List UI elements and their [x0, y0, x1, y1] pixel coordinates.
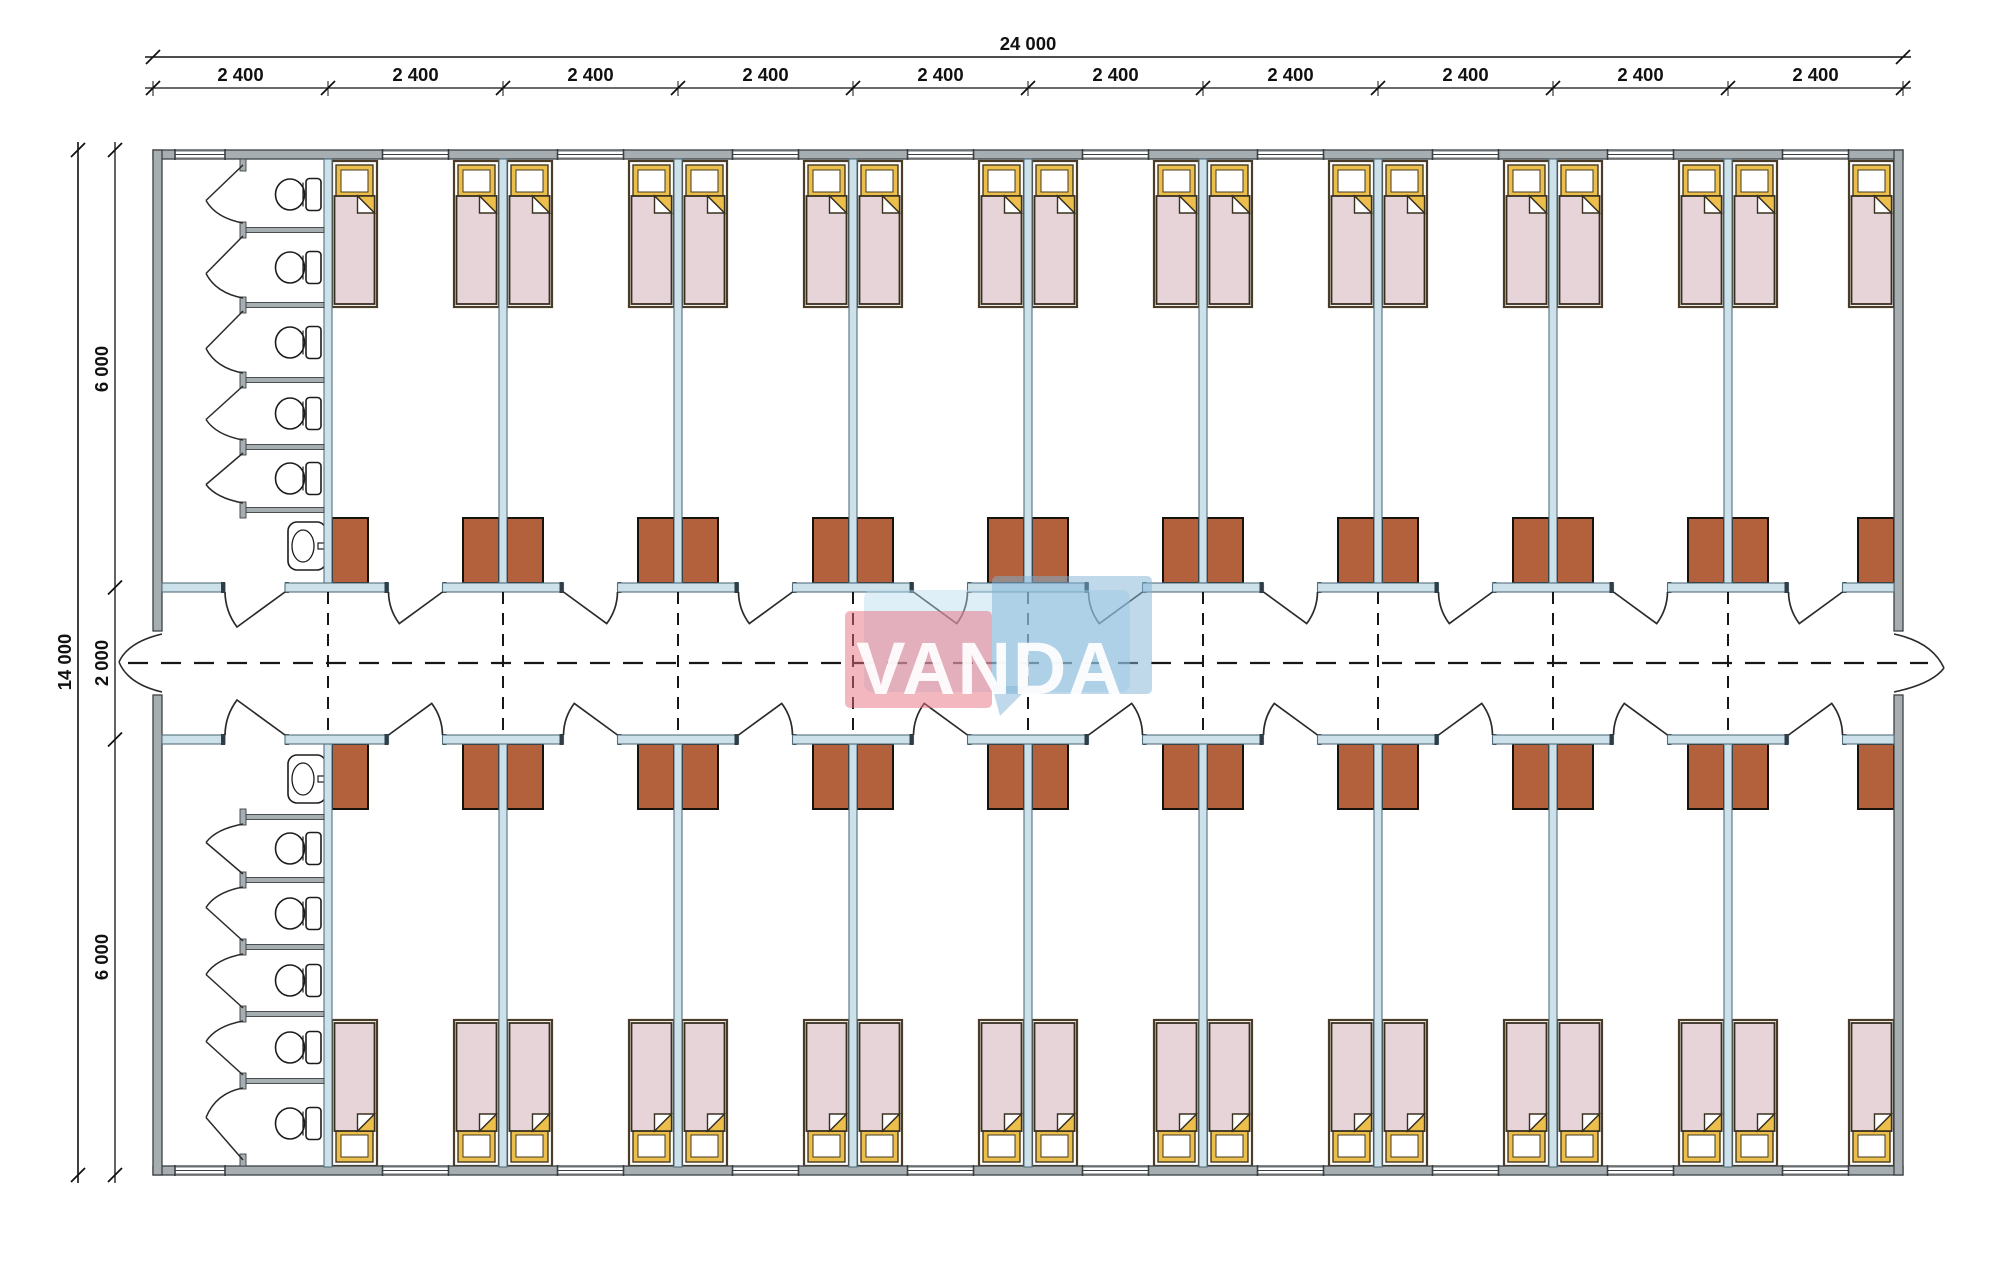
bed-pillow-inner	[1391, 1135, 1418, 1157]
bed	[629, 161, 674, 307]
wardrobe-cabinet	[988, 518, 1024, 583]
corridor-wall	[1668, 735, 1789, 744]
door-jamb-cap	[735, 734, 739, 745]
toilet-tank	[306, 327, 321, 359]
toilet-bowl	[276, 252, 305, 283]
toilet	[276, 398, 322, 430]
stall-door-leaf	[206, 1042, 243, 1076]
bed-pillow-inner	[866, 170, 893, 192]
corridor-wall	[1493, 735, 1614, 744]
sink	[288, 755, 326, 803]
bed	[454, 1020, 499, 1166]
wardrobe-cabinet	[638, 518, 674, 583]
partition-wall	[849, 159, 857, 583]
sink-basin	[292, 530, 314, 562]
stall-front-wall	[240, 1006, 246, 1022]
stall-front-wall	[240, 502, 246, 518]
window	[558, 149, 624, 160]
bed	[1679, 1020, 1724, 1166]
bed-pillow-inner	[1338, 170, 1365, 192]
stall-door-swing	[206, 1088, 243, 1118]
stall-door-swing	[206, 485, 243, 504]
stall-wall	[246, 1012, 324, 1017]
bed-pillow-inner	[1513, 170, 1540, 192]
stall-door-leaf	[206, 843, 243, 875]
wardrobe-cabinet	[1382, 744, 1418, 809]
stall-door-swing	[206, 954, 243, 975]
bed-pillow-inner	[691, 170, 718, 192]
wardrobe-cabinet	[332, 518, 368, 583]
wardrobe-cabinet	[1557, 518, 1593, 583]
sink-basin	[292, 763, 314, 795]
door-swing	[1264, 592, 1318, 624]
toilet-tank	[306, 398, 321, 430]
wardrobe-cabinet	[682, 518, 718, 583]
door-jamb-cap	[560, 582, 564, 593]
toilet-tank	[306, 1032, 321, 1064]
toilet-bowl	[276, 965, 305, 996]
stall-wall	[246, 303, 324, 308]
toilet-tank	[306, 463, 321, 495]
bed	[682, 1020, 727, 1166]
dimension-label: 2 400	[917, 64, 963, 85]
bed	[857, 161, 902, 307]
bed-pillow-inner	[866, 1135, 893, 1157]
wardrobe-cabinet	[1858, 518, 1894, 583]
bed	[1154, 1020, 1199, 1166]
stall-front-wall	[240, 1073, 246, 1089]
bed	[1504, 161, 1549, 307]
window	[1083, 1165, 1149, 1176]
window	[1258, 1165, 1324, 1176]
exterior-wall	[153, 150, 162, 631]
partition-wall	[1024, 159, 1032, 583]
corridor-wall	[285, 583, 389, 592]
door-swing	[389, 592, 443, 624]
watermark: VANDA	[845, 576, 1152, 716]
partition-wall	[849, 744, 857, 1167]
wardrobe-cabinet	[1032, 518, 1068, 583]
door-jamb-cap	[385, 582, 389, 593]
bed	[1732, 161, 1777, 307]
toilet-tank	[306, 1108, 321, 1140]
stall-door-swing	[206, 420, 243, 441]
stall-front-wall	[240, 809, 246, 825]
toilet-bowl	[276, 179, 305, 210]
window	[1083, 149, 1149, 160]
corridor-wall	[162, 583, 225, 592]
bed-pillow-inner	[988, 1135, 1015, 1157]
window	[1258, 149, 1324, 160]
toilet	[276, 179, 322, 211]
wardrobe-cabinet	[1032, 744, 1068, 809]
wardrobe-cabinet	[638, 744, 674, 809]
bed-pillow-inner	[1566, 1135, 1593, 1157]
door-swing	[1439, 592, 1493, 624]
door-jamb-cap	[1610, 734, 1614, 745]
window	[1433, 149, 1499, 160]
door-swing	[1264, 703, 1318, 735]
wardrobe-cabinet	[1513, 744, 1549, 809]
door-jamb-cap	[560, 734, 564, 745]
window	[383, 149, 449, 160]
door-jamb-cap	[385, 734, 389, 745]
bed	[682, 161, 727, 307]
partition-wall	[1724, 159, 1732, 583]
wardrobe-cabinet	[1732, 744, 1768, 809]
dimension-label: 6 000	[91, 346, 112, 392]
bed-pillow-inner	[516, 1135, 543, 1157]
window	[1783, 149, 1849, 160]
stall-door-swing	[206, 1021, 243, 1042]
bed-pillow-inner	[1688, 1135, 1715, 1157]
wardrobe-cabinet	[1207, 744, 1243, 809]
window	[558, 1165, 624, 1176]
dimension-label: 2 400	[1092, 64, 1138, 85]
partition-wall	[1549, 744, 1557, 1167]
toilet	[276, 965, 322, 997]
stall-front-wall	[240, 222, 246, 238]
stall-wall	[246, 945, 324, 950]
bed	[1679, 161, 1724, 307]
exterior-wall	[153, 695, 162, 1175]
bed-pillow-inner	[638, 1135, 665, 1157]
door-swing	[1789, 703, 1843, 735]
bed-pillow-inner	[1566, 170, 1593, 192]
partition-wall	[674, 159, 682, 583]
corridor-wall	[1843, 735, 1895, 744]
toilet-tank	[306, 252, 321, 284]
door-jamb-cap	[1260, 734, 1264, 745]
window	[383, 1165, 449, 1176]
stall-front-wall	[240, 939, 246, 955]
corridor-wall	[1843, 583, 1895, 592]
door-swing	[739, 703, 793, 735]
bed	[1207, 1020, 1252, 1166]
window	[1608, 149, 1674, 160]
bed	[1329, 161, 1374, 307]
door-swing	[1789, 592, 1843, 624]
stall-door-leaf	[206, 386, 243, 420]
stall-wall	[246, 378, 324, 383]
wardrobe-cabinet	[507, 744, 543, 809]
sink	[288, 522, 326, 570]
stall-front-wall	[240, 872, 246, 888]
wardrobe-cabinet	[1688, 518, 1724, 583]
bed	[332, 1020, 377, 1166]
stall-door-leaf	[206, 908, 243, 942]
door-jamb-cap	[735, 582, 739, 593]
door-swing	[739, 592, 793, 624]
toilet-bowl	[276, 833, 305, 864]
bed	[1504, 1020, 1549, 1166]
toilet	[276, 898, 322, 930]
dimension-label: 2 400	[217, 64, 263, 85]
dimension-label: 2 400	[1442, 64, 1488, 85]
bed	[332, 161, 377, 307]
bed	[1557, 161, 1602, 307]
stall-door-leaf	[206, 453, 243, 485]
bed-pillow-inner	[341, 170, 368, 192]
bed	[804, 1020, 849, 1166]
stall-door-swing	[206, 274, 243, 299]
partition-wall	[1199, 744, 1207, 1167]
window	[175, 1165, 225, 1176]
bed-pillow-inner	[1216, 1135, 1243, 1157]
dormitory-floor-plan: 24 0002 4002 4002 4002 4002 4002 4002 40…	[0, 0, 2000, 1285]
window	[733, 149, 799, 160]
wardrobe-cabinet	[1207, 518, 1243, 583]
wardrobe-cabinet	[682, 744, 718, 809]
toilet-bowl	[276, 463, 305, 494]
stall-wall	[246, 445, 324, 450]
bed	[454, 161, 499, 307]
toilet	[276, 252, 322, 284]
bed-pillow-inner	[813, 1135, 840, 1157]
toilet	[276, 1108, 322, 1140]
stall-door-swing	[206, 201, 243, 224]
bed-pillow-inner	[1858, 1135, 1885, 1157]
bed	[507, 1020, 552, 1166]
watermark-text: VANDA	[856, 627, 1124, 710]
partition-wall	[499, 159, 507, 583]
wardrobe-cabinet	[857, 744, 893, 809]
bed-pillow-inner	[463, 1135, 490, 1157]
door-jamb-cap	[910, 734, 914, 745]
bed-pillow-inner	[1338, 1135, 1365, 1157]
dimension-label: 24 000	[1000, 33, 1057, 54]
bed-pillow-inner	[1041, 170, 1068, 192]
stall-door-leaf	[206, 1118, 243, 1161]
door-jamb-cap	[1610, 582, 1614, 593]
corridor-wall	[1493, 583, 1614, 592]
wardrobe-cabinet	[1557, 744, 1593, 809]
wardrobe-cabinet	[988, 744, 1024, 809]
door-jamb-cap	[1085, 734, 1089, 745]
bed-pillow-inner	[1163, 170, 1190, 192]
stall-front-wall	[240, 439, 246, 455]
bed	[979, 1020, 1024, 1166]
wardrobe-cabinet	[1163, 518, 1199, 583]
bed-pillow-inner	[1513, 1135, 1540, 1157]
bed	[857, 1020, 902, 1166]
corridor-wall	[162, 735, 225, 744]
bed-pillow-inner	[988, 170, 1015, 192]
wardrobe-cabinet	[507, 518, 543, 583]
dimension-label: 2 400	[567, 64, 613, 85]
stall-door-leaf	[206, 165, 243, 201]
dimension-label: 2 000	[91, 640, 112, 686]
partition-wall	[324, 159, 332, 583]
bed	[979, 161, 1024, 307]
bed-pillow-inner	[1688, 170, 1715, 192]
bed	[1032, 161, 1077, 307]
corridor-wall	[443, 735, 564, 744]
wardrobe-cabinet	[1382, 518, 1418, 583]
toilet-tank	[306, 898, 321, 930]
wardrobe-cabinet	[463, 744, 499, 809]
window	[908, 1165, 974, 1176]
corridor-wall	[968, 735, 1089, 744]
door-swing	[1614, 703, 1668, 735]
bed	[1329, 1020, 1374, 1166]
corridor-wall	[793, 735, 914, 744]
wardrobe-cabinet	[813, 744, 849, 809]
stall-wall	[246, 815, 324, 820]
dimension-label: 14 000	[54, 634, 75, 691]
toilet	[276, 327, 322, 359]
wardrobe-cabinet	[857, 518, 893, 583]
stall-wall	[246, 228, 324, 233]
bathroom-door-swing	[225, 700, 285, 735]
bed	[1849, 161, 1894, 307]
wardrobe-cabinet	[813, 518, 849, 583]
window	[1783, 1165, 1849, 1176]
corridor-wall	[1318, 583, 1439, 592]
bed-pillow-inner	[1216, 170, 1243, 192]
bed-pillow-inner	[691, 1135, 718, 1157]
bed	[1382, 161, 1427, 307]
door-jamb-cap	[221, 582, 225, 593]
stall-wall	[246, 508, 324, 513]
exterior-wall	[1894, 150, 1903, 631]
toilet	[276, 463, 322, 495]
bed	[1032, 1020, 1077, 1166]
door-swing	[389, 703, 443, 735]
window	[175, 149, 225, 160]
wardrobe-cabinet	[1732, 518, 1768, 583]
partition-wall	[1374, 744, 1382, 1167]
door-jamb-cap	[221, 734, 225, 745]
corridor-wall	[1143, 735, 1264, 744]
partition-wall	[1374, 159, 1382, 583]
wardrobe-cabinet	[1163, 744, 1199, 809]
bed	[1557, 1020, 1602, 1166]
corridor-wall	[285, 735, 389, 744]
bed	[1207, 161, 1252, 307]
bed	[1849, 1020, 1894, 1166]
toilet-tank	[306, 965, 321, 997]
wardrobe-cabinet	[1338, 744, 1374, 809]
stall-wall	[246, 1079, 324, 1084]
door-jamb-cap	[1435, 734, 1439, 745]
bed-pillow-inner	[638, 170, 665, 192]
wardrobe-cabinet	[1688, 744, 1724, 809]
corridor-wall	[618, 735, 739, 744]
stall-wall	[246, 878, 324, 883]
bed	[1732, 1020, 1777, 1166]
door-jamb-cap	[1260, 582, 1264, 593]
exterior-wall	[1894, 695, 1903, 1175]
bed-pillow-inner	[1741, 170, 1768, 192]
partition-wall	[1024, 744, 1032, 1167]
partition-wall	[674, 744, 682, 1167]
dimension-label: 2 400	[392, 64, 438, 85]
page: 24 0002 4002 4002 4002 4002 4002 4002 40…	[0, 0, 2000, 1285]
bed-pillow-inner	[1858, 170, 1885, 192]
toilet-bowl	[276, 398, 305, 429]
wardrobe-cabinet	[1513, 518, 1549, 583]
bed	[629, 1020, 674, 1166]
toilet	[276, 833, 322, 865]
window	[1608, 1165, 1674, 1176]
toilet-tank	[306, 179, 321, 211]
wardrobe-cabinet	[1858, 744, 1894, 809]
stall-front-wall	[240, 372, 246, 388]
stall-door-swing	[206, 824, 243, 843]
stall-door-swing	[206, 349, 243, 374]
bed-pillow-inner	[1041, 1135, 1068, 1157]
bed	[507, 161, 552, 307]
partition-wall	[1549, 159, 1557, 583]
bed-pillow-inner	[1163, 1135, 1190, 1157]
bed	[1154, 161, 1199, 307]
bed-pillow-inner	[463, 170, 490, 192]
corridor-wall	[618, 583, 739, 592]
partition-wall	[1199, 159, 1207, 583]
dimension-label: 2 400	[1617, 64, 1663, 85]
partition-wall	[324, 744, 332, 1167]
bed-pillow-inner	[813, 170, 840, 192]
stall-door-leaf	[206, 975, 243, 1009]
dimension-label: 2 400	[1267, 64, 1313, 85]
door-swing	[564, 592, 618, 624]
bed-pillow-inner	[1741, 1135, 1768, 1157]
door-swing	[564, 703, 618, 735]
wardrobe-cabinet	[1338, 518, 1374, 583]
door-jamb-cap	[1785, 734, 1789, 745]
partition-wall	[1724, 744, 1732, 1167]
stall-door-leaf	[206, 236, 243, 274]
door-swing	[1439, 703, 1493, 735]
window	[1433, 1165, 1499, 1176]
window	[908, 149, 974, 160]
window	[733, 1165, 799, 1176]
door-jamb-cap	[1435, 582, 1439, 593]
stall-door-leaf	[206, 311, 243, 349]
toilet-bowl	[276, 898, 305, 929]
toilet-bowl	[276, 1032, 305, 1063]
bed	[1382, 1020, 1427, 1166]
toilet-bowl	[276, 1108, 305, 1139]
corridor-wall	[1668, 583, 1789, 592]
bed	[804, 161, 849, 307]
toilet-tank	[306, 833, 321, 865]
bed-pillow-inner	[1391, 170, 1418, 192]
dimension-label: 2 400	[742, 64, 788, 85]
door-jamb-cap	[1785, 582, 1789, 593]
wardrobe-cabinet	[332, 744, 368, 809]
door-swing	[1614, 592, 1668, 624]
partition-wall	[499, 744, 507, 1167]
wardrobe-cabinet	[463, 518, 499, 583]
toilet-bowl	[276, 327, 305, 358]
bathroom-door-swing	[225, 592, 285, 627]
corridor-wall	[1143, 583, 1264, 592]
bed-pillow-inner	[341, 1135, 368, 1157]
bed-pillow-inner	[516, 170, 543, 192]
corridor-wall	[1318, 735, 1439, 744]
corridor-wall	[443, 583, 564, 592]
stall-front-wall	[240, 297, 246, 313]
stall-door-swing	[206, 887, 243, 908]
toilet	[276, 1032, 322, 1064]
dimension-label: 2 400	[1792, 64, 1838, 85]
dimension-label: 6 000	[91, 934, 112, 980]
